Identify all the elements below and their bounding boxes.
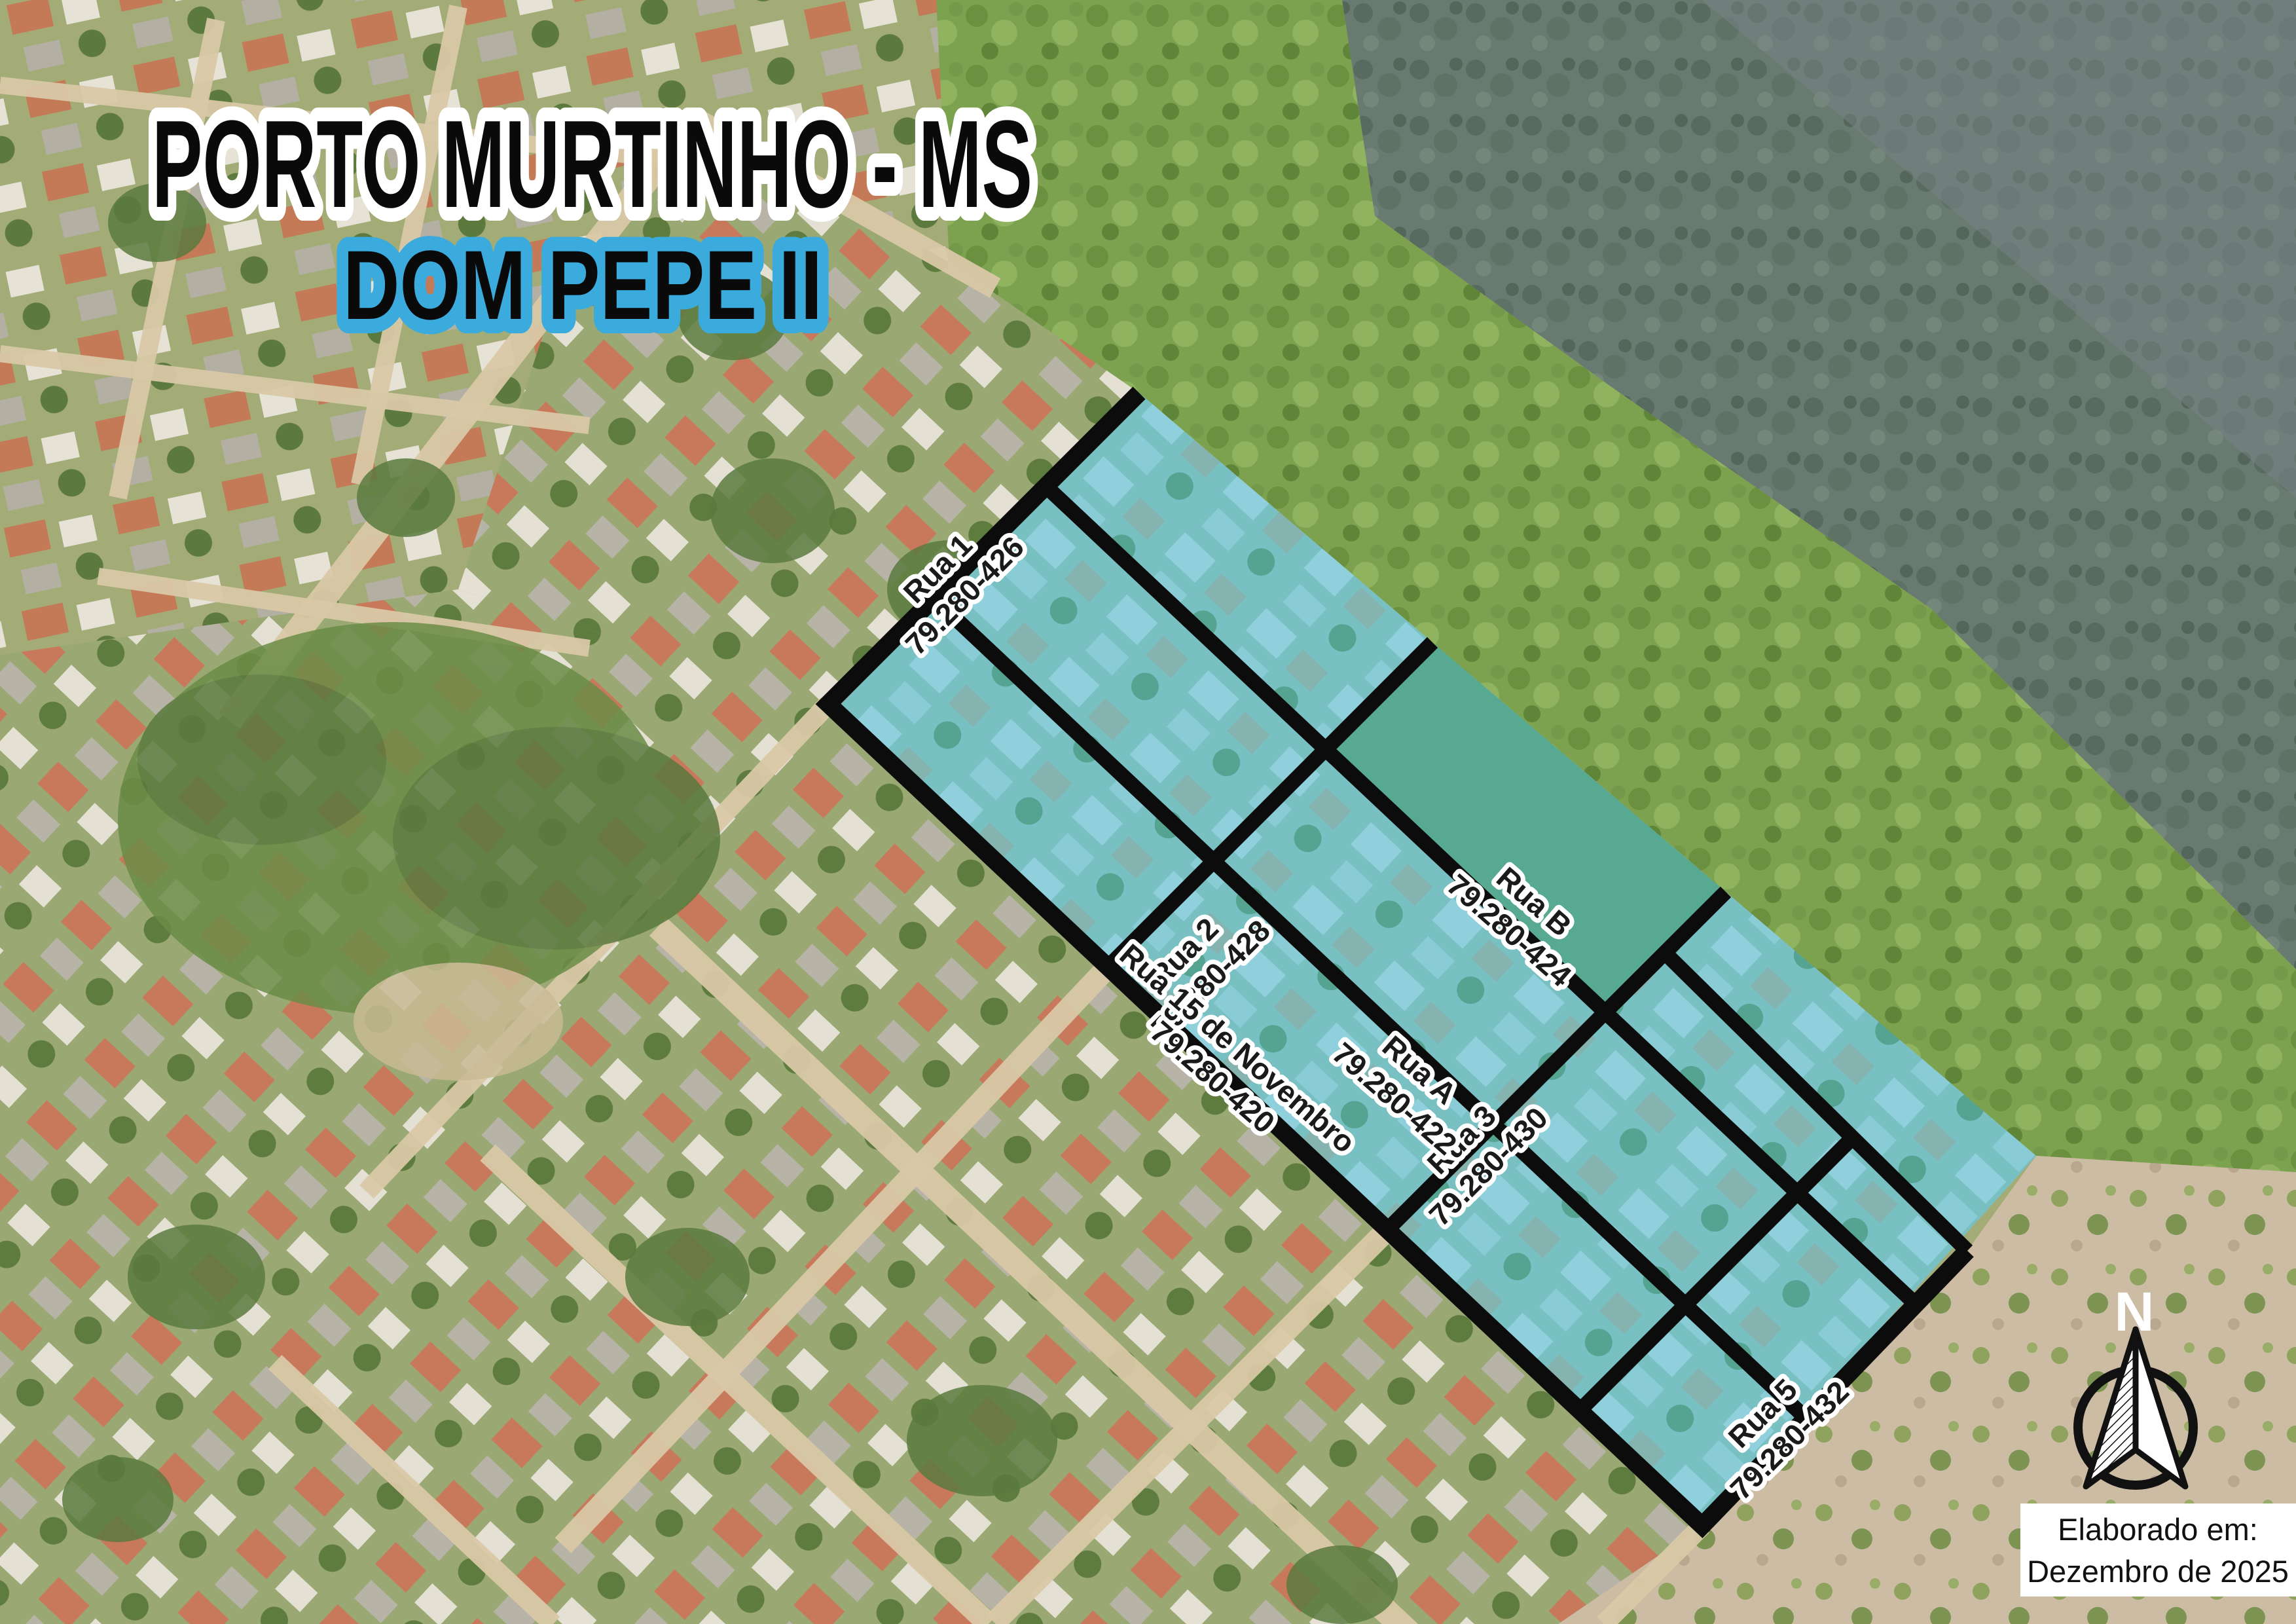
credits-line2: Dezembro de 2025 <box>2027 1554 2289 1589</box>
credits-line1: Elaborado em: <box>2058 1512 2258 1547</box>
map-screenshot: Rua 179.280-426Rua 279.280-428Rua 379.28… <box>0 0 2296 1624</box>
aerial-map-canvas: Rua 179.280-426Rua 279.280-428Rua 379.28… <box>0 0 2296 1624</box>
credits-box: Elaborado em: Dezembro de 2025 <box>2020 1504 2296 1596</box>
north-label: N <box>2115 1281 2155 1342</box>
page-subtitle: DOM PEPE II <box>343 230 822 340</box>
page-title: PORTO MURTINHO - MS <box>152 95 1032 234</box>
